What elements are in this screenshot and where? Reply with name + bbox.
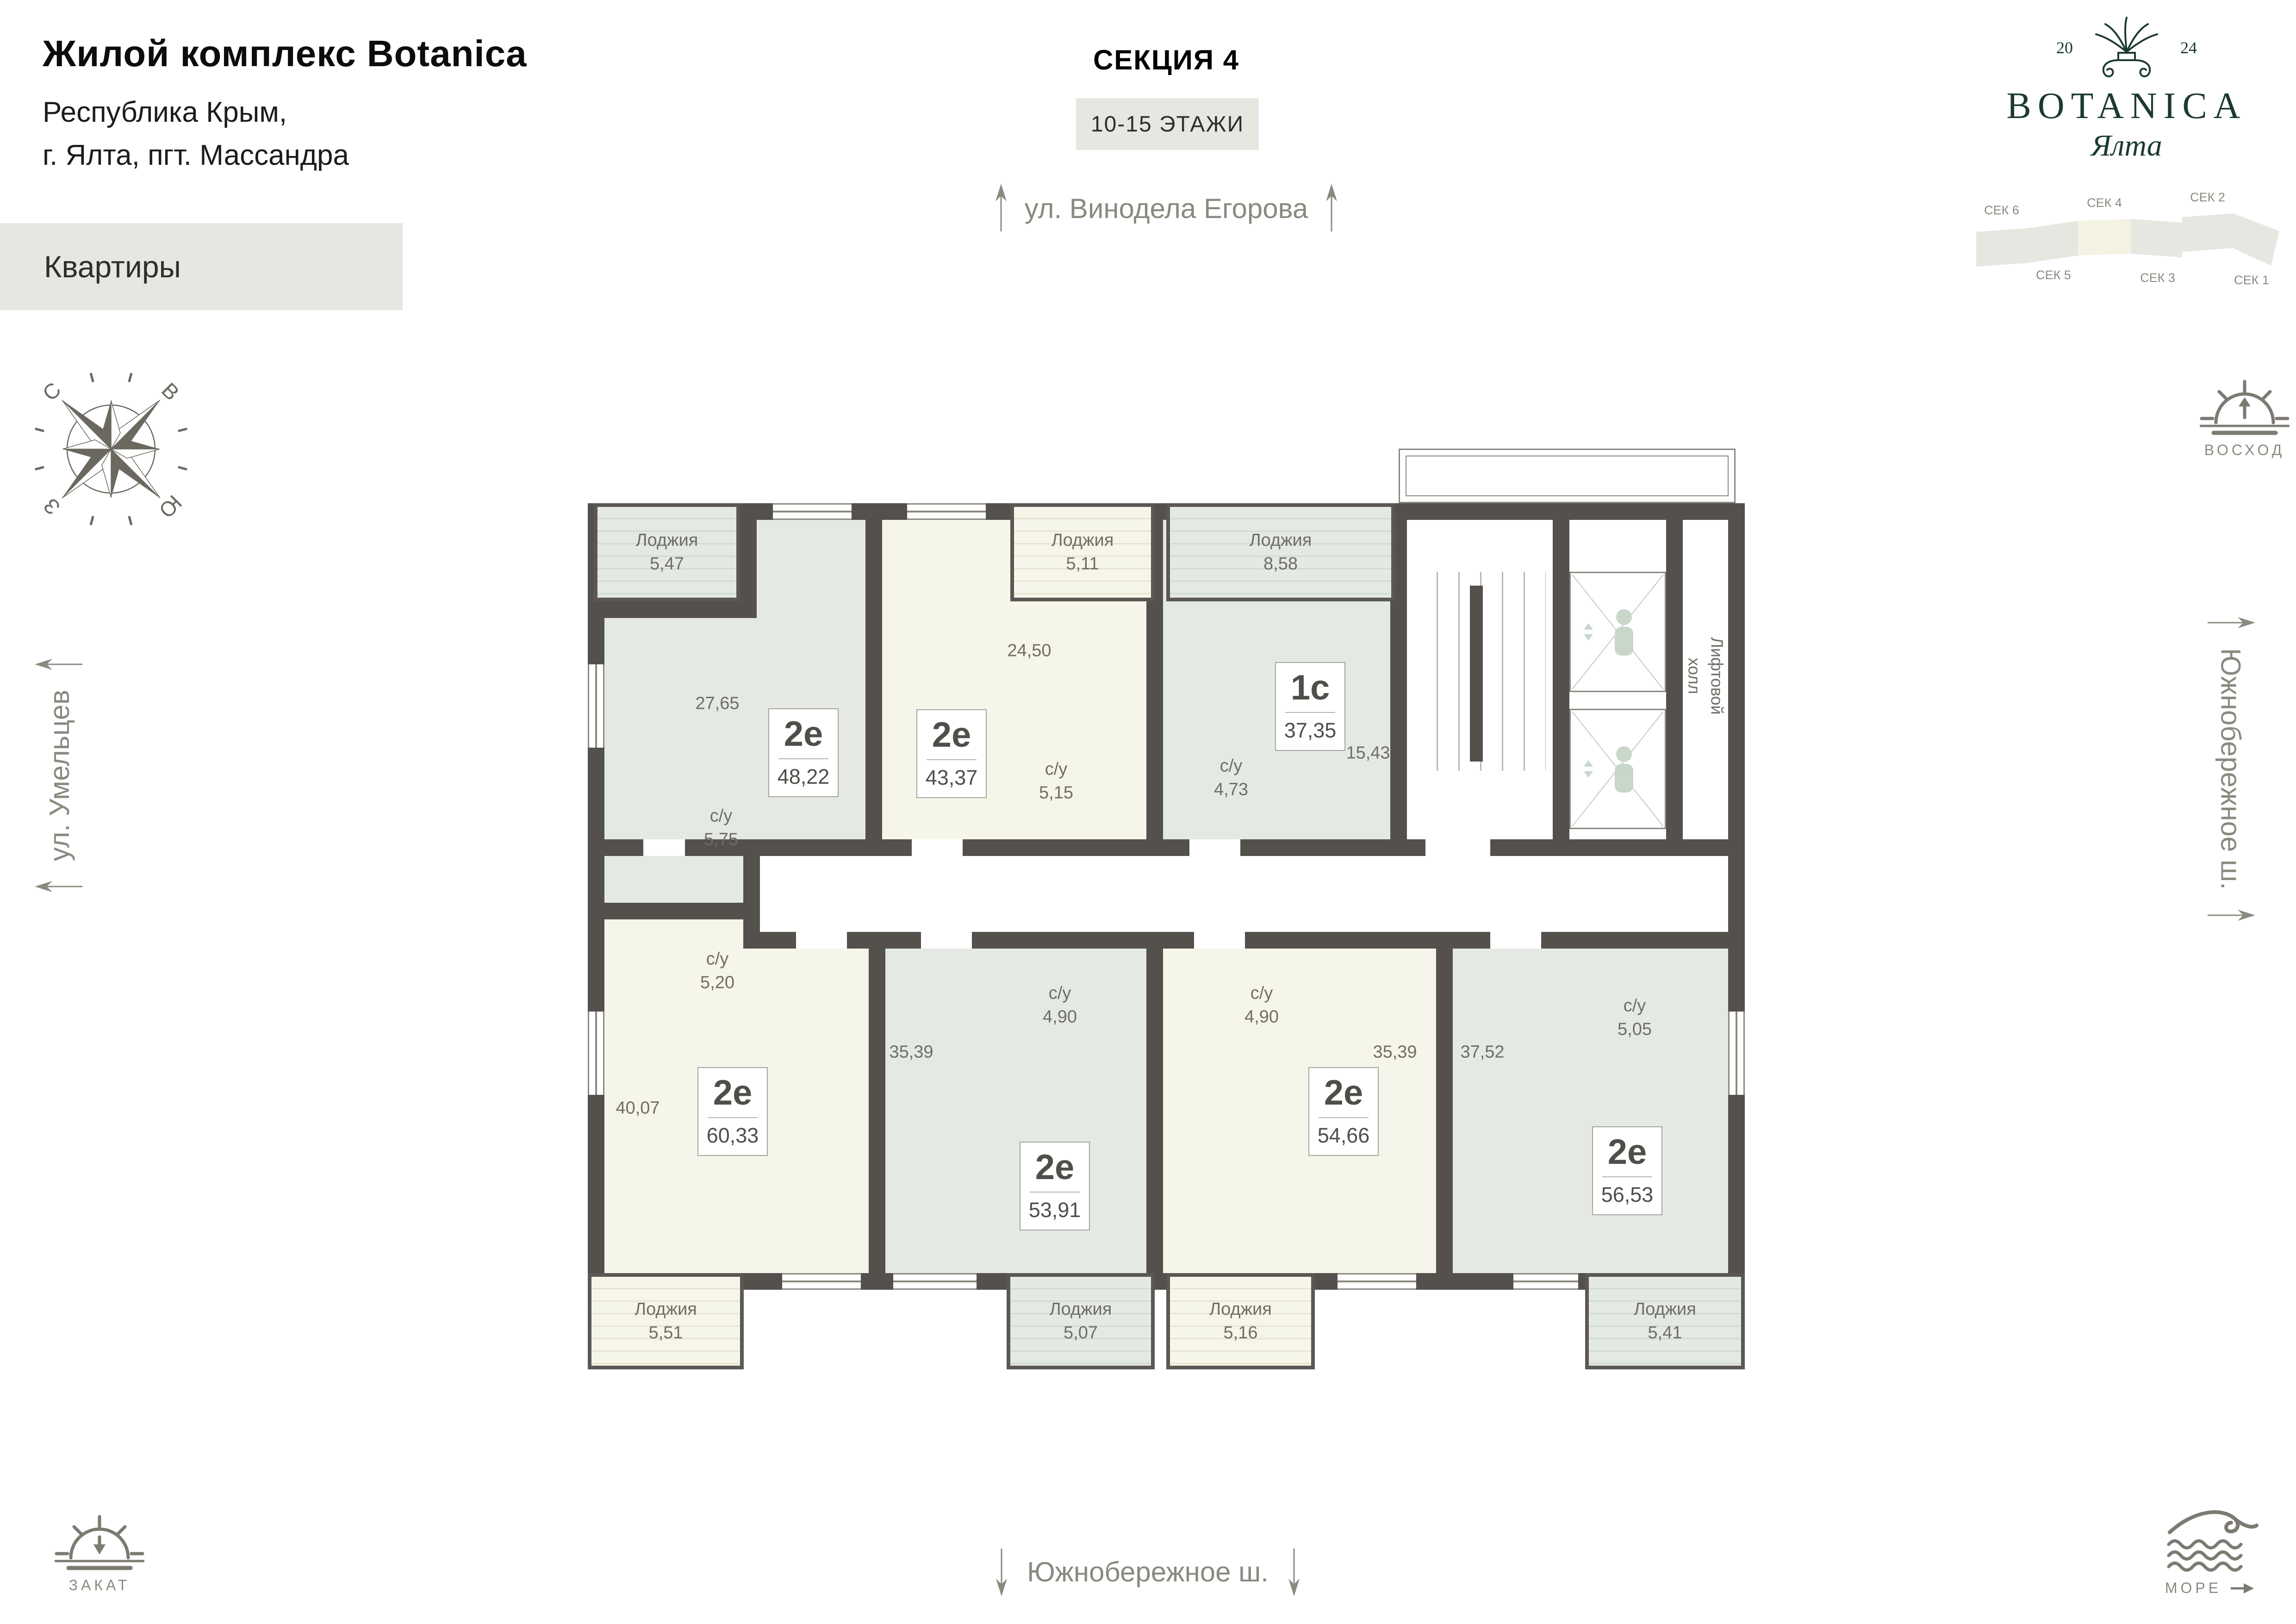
address-line-1: Республика Крым, <box>43 91 349 134</box>
wc-label: с/у4,73 <box>1214 755 1248 802</box>
window <box>588 664 604 748</box>
room-area-label: 24,50 <box>1007 639 1051 662</box>
section-map-label-sec5: СЕК 5 <box>2036 268 2071 282</box>
door-opening <box>1189 839 1240 856</box>
window <box>893 1273 977 1290</box>
street-right-label: Южнобережное ш. <box>2215 648 2247 890</box>
floors-badge: 10-15 ЭТАЖИ <box>1076 98 1259 150</box>
window <box>1513 1273 1578 1290</box>
elevator-icon <box>1571 710 1665 828</box>
section-map-label-sec2: СЕК 2 <box>2190 190 2225 204</box>
sea-wave-icon <box>2161 1504 2259 1573</box>
section-map-label-sec4: СЕК 4 <box>2087 196 2122 210</box>
window <box>773 503 852 520</box>
street-left: ул. Умельцев <box>18 657 101 893</box>
corridor <box>760 856 1728 932</box>
wc-label: с/у5,20 <box>700 948 734 995</box>
sunset-landmark: ЗАКАТ <box>46 1514 153 1594</box>
arrow-down-icon <box>1287 1546 1301 1597</box>
arrow-down-icon <box>995 1546 1008 1597</box>
street-bottom-label: Южнобережное ш. <box>1027 1556 1269 1588</box>
arrow-right-icon <box>2205 908 2256 922</box>
section-map: СЕК 6 СЕК 4 СЕК 2 СЕК 5 СЕК 3 СЕК 1 <box>1974 176 2279 285</box>
floors-label: 10-15 ЭТАЖИ <box>1091 112 1244 137</box>
window <box>1728 1012 1745 1095</box>
logo-year-right: 24 <box>2180 38 2197 57</box>
arrow-right-icon <box>2205 616 2256 630</box>
loggia-8-58[interactable]: Лоджия8,58 <box>1166 503 1395 601</box>
terrace-outline <box>1399 449 1736 503</box>
apartment-badge-48-22[interactable]: 2е48,22 <box>768 708 839 797</box>
sunset-icon <box>55 1514 144 1570</box>
section-map-sec5-shape[interactable] <box>2027 221 2078 263</box>
door-opening <box>643 839 685 856</box>
compass-rose-icon: С В З Ю <box>25 363 197 535</box>
wc-label: с/у5,75 <box>704 805 738 852</box>
apartment-badge-37-35[interactable]: 1с37,35 <box>1275 662 1345 751</box>
compass-north: С <box>37 377 65 405</box>
door-opening <box>912 839 963 856</box>
window <box>907 503 986 520</box>
section-map-sec4-shape[interactable] <box>2078 219 2131 256</box>
logo-year-left: 20 <box>2056 38 2073 57</box>
category-label: Квартиры <box>44 249 181 284</box>
sunrise-landmark: ВОСХОД <box>2196 379 2293 459</box>
arrow-left-icon <box>34 880 85 893</box>
sea-arrow-icon <box>2229 1581 2255 1595</box>
section-map-label-sec1: СЕК 1 <box>2234 273 2269 285</box>
apartment-badge-53-91[interactable]: 2е53,91 <box>1020 1142 1090 1230</box>
door-opening <box>1490 932 1541 949</box>
lift-hall-label: Лифтовой холл <box>1683 637 1728 715</box>
street-top-label: ул. Винодела Егорова <box>1025 193 1308 225</box>
elevator-shaft <box>1569 709 1666 829</box>
street-top: ул. Винодела Егорова <box>912 183 1421 234</box>
apartment-badge-56-53[interactable]: 2е56,53 <box>1592 1126 1662 1215</box>
street-bottom: Южнобережное ш. <box>893 1546 1402 1597</box>
apartment-54-66-room[interactable] <box>1163 949 1436 1273</box>
loggia-5-07[interactable]: Лоджия5,07 <box>1007 1273 1155 1369</box>
loggia-5-16[interactable]: Лоджия5,16 <box>1166 1273 1315 1369</box>
palmette-ornament-icon <box>2085 13 2168 82</box>
brand-city: Ялта <box>1965 128 2289 163</box>
loggia-5-51[interactable]: Лоджия5,51 <box>588 1273 744 1369</box>
wc-label: с/у4,90 <box>1244 982 1279 1030</box>
room-area-label: 15,43 <box>1346 741 1390 765</box>
loggia-5-47[interactable]: Лоджия5,47 <box>594 503 740 601</box>
window <box>1338 1273 1416 1290</box>
loggia-5-11[interactable]: Лоджия5,11 <box>1010 503 1155 601</box>
door-opening <box>921 932 972 949</box>
sunset-label: ЗАКАТ <box>69 1577 131 1594</box>
apartment-53-91-room[interactable] <box>885 949 1146 1273</box>
brand-name: BOTANICA <box>1965 85 2289 127</box>
room-area-label: 37,52 <box>1460 1040 1504 1064</box>
room-area-label: 27,65 <box>695 692 739 715</box>
compass-east: В <box>157 378 184 405</box>
elevator-icon <box>1571 573 1665 691</box>
lift-hall-line2: холл <box>1685 658 1704 694</box>
wall <box>1553 520 1569 839</box>
lift-hall-line1: Лифтовой <box>1708 637 1727 715</box>
address: Республика Крым, г. Ялта, пгт. Массандра <box>43 91 349 177</box>
door-opening <box>796 932 847 949</box>
wall <box>1666 520 1683 839</box>
sea-label: МОРЕ <box>2165 1580 2221 1597</box>
section-title: СЕКЦИЯ 4 <box>935 44 1398 76</box>
apartment-56-53-room[interactable] <box>1453 949 1728 1273</box>
window <box>782 1273 861 1290</box>
section-map-sec2-shape[interactable] <box>2182 213 2233 252</box>
wc-label: с/у5,05 <box>1618 994 1652 1042</box>
section-map-label-sec3: СЕК 3 <box>2140 271 2175 285</box>
street-right: Южнобережное ш. <box>2184 616 2277 922</box>
room-area-label: 40,07 <box>616 1096 660 1120</box>
wc-label: с/у4,90 <box>1043 982 1077 1030</box>
room-area-label: 35,39 <box>1373 1040 1417 1064</box>
door-opening <box>1425 839 1490 856</box>
window <box>588 1012 604 1095</box>
arrow-up-icon <box>1325 183 1338 234</box>
arrow-up-icon <box>994 183 1008 234</box>
section-map-sec3-shape[interactable] <box>2131 219 2182 257</box>
apartment-badge-43-37[interactable]: 2е43,37 <box>916 709 987 798</box>
address-line-2: г. Ялта, пгт. Массандра <box>43 134 349 177</box>
wc-label: с/у5,15 <box>1039 758 1073 806</box>
section-map-sec1-shape[interactable] <box>2233 213 2279 266</box>
apartment-badge-54-66[interactable]: 2е54,66 <box>1308 1067 1379 1156</box>
room-area-label: 35,39 <box>889 1040 933 1064</box>
category-tab-apartments[interactable]: Квартиры <box>0 223 403 310</box>
elevator-shaft <box>1569 572 1666 692</box>
compass-south: Ю <box>155 491 187 523</box>
stair-divider-wall <box>1470 586 1483 762</box>
arrow-left-icon <box>34 657 85 671</box>
loggia-5-41[interactable]: Лоджия5,41 <box>1585 1273 1745 1369</box>
compass-west: З <box>38 493 64 519</box>
brand-logo: 20 24 BOTANICA Ялта СЕК 6 СЕК 4 СЕК 2 СЕ… <box>1965 13 2289 287</box>
apartment-badge-60-33[interactable]: 2е60,33 <box>697 1067 768 1156</box>
section-map-sec6-shape[interactable] <box>1976 228 2027 267</box>
page-title: Жилой комплекс Botanica <box>43 32 527 75</box>
door-opening <box>1194 932 1245 949</box>
section-map-label-sec6: СЕК 6 <box>1984 203 2019 217</box>
sea-landmark: МОРЕ <box>2152 1504 2268 1597</box>
sunrise-icon <box>2200 379 2290 435</box>
street-left-label: ул. Умельцев <box>44 690 75 861</box>
apartment-48-22-bath[interactable] <box>604 856 743 903</box>
floor-plan: Лифтовой холл Лоджия5,47 Лоджия5,11 Лодж… <box>588 433 1745 1373</box>
sunrise-label: ВОСХОД <box>2204 442 2285 459</box>
